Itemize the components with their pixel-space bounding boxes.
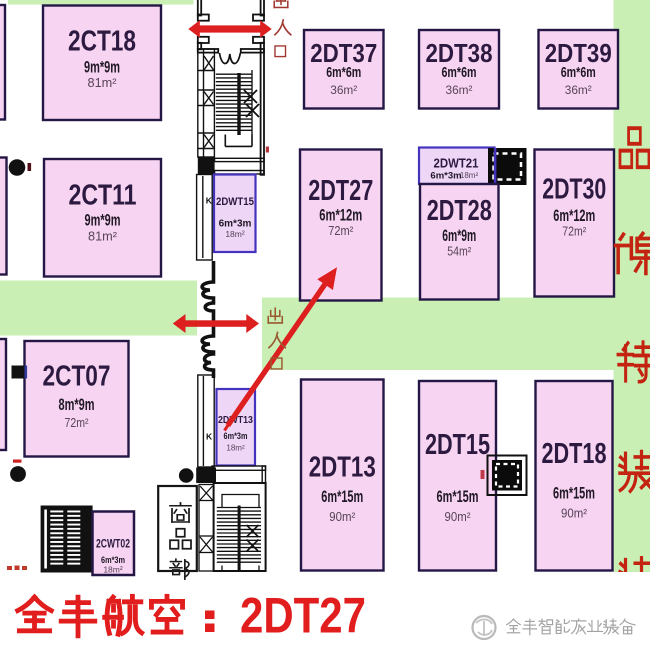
svg-text:6m*9m: 6m*9m xyxy=(442,226,476,245)
svg-text:K: K xyxy=(206,196,213,206)
svg-text:6m*15m: 6m*15m xyxy=(553,484,595,503)
svg-text:6m*15m: 6m*15m xyxy=(437,487,479,506)
svg-text:6m*15m: 6m*15m xyxy=(321,487,363,506)
svg-text:6m*6m: 6m*6m xyxy=(561,64,596,81)
svg-text:2CT18: 2CT18 xyxy=(68,26,136,58)
svg-text:72m²: 72m² xyxy=(328,223,354,238)
svg-text:9m*9m: 9m*9m xyxy=(85,211,121,230)
svg-text:81m²: 81m² xyxy=(88,75,118,90)
svg-text:6m*3m: 6m*3m xyxy=(430,171,461,182)
svg-text:18m²: 18m² xyxy=(225,229,245,239)
svg-text:6m*6m: 6m*6m xyxy=(326,64,361,81)
svg-text:9m*9m: 9m*9m xyxy=(84,58,120,77)
svg-text:54m²: 54m² xyxy=(447,244,472,259)
svg-text:72m²: 72m² xyxy=(562,224,587,239)
svg-text:2DT18: 2DT18 xyxy=(542,438,607,470)
svg-text:6m*3m: 6m*3m xyxy=(224,431,248,441)
svg-text:2DWT21: 2DWT21 xyxy=(434,157,479,171)
svg-text:6m*12m: 6m*12m xyxy=(319,206,362,225)
svg-text:36m²: 36m² xyxy=(565,83,592,97)
svg-text:18m²: 18m² xyxy=(460,171,479,180)
svg-text:2DT28: 2DT28 xyxy=(427,195,492,227)
svg-text:18m²: 18m² xyxy=(226,444,245,453)
svg-text:72m²: 72m² xyxy=(65,415,90,430)
svg-text:90m²: 90m² xyxy=(445,509,472,524)
svg-text:2DT13: 2DT13 xyxy=(309,452,376,484)
svg-text:2CWT02: 2CWT02 xyxy=(96,537,130,551)
svg-text:2CT07: 2CT07 xyxy=(43,361,111,393)
svg-text:K: K xyxy=(206,432,213,442)
svg-text:90m²: 90m² xyxy=(329,509,356,524)
svg-text:18m²: 18m² xyxy=(103,565,123,575)
svg-text:6m*12m: 6m*12m xyxy=(553,206,595,225)
svg-text:2DT15: 2DT15 xyxy=(425,429,490,461)
svg-text:8m*9m: 8m*9m xyxy=(59,395,95,414)
svg-text:2DWT15: 2DWT15 xyxy=(216,196,254,208)
svg-text:36m²: 36m² xyxy=(446,83,473,97)
svg-text:2DT27: 2DT27 xyxy=(308,175,373,207)
svg-text:2DT30: 2DT30 xyxy=(542,174,606,206)
svg-text:6m*6m: 6m*6m xyxy=(442,64,477,81)
svg-text:36m²: 36m² xyxy=(330,83,357,97)
svg-text:2CT11: 2CT11 xyxy=(69,180,137,212)
svg-text:90m²: 90m² xyxy=(561,506,588,521)
svg-text:81m²: 81m² xyxy=(88,229,118,244)
svg-text:6m*3m: 6m*3m xyxy=(219,219,252,230)
svg-text:2DT27: 2DT27 xyxy=(240,588,366,644)
